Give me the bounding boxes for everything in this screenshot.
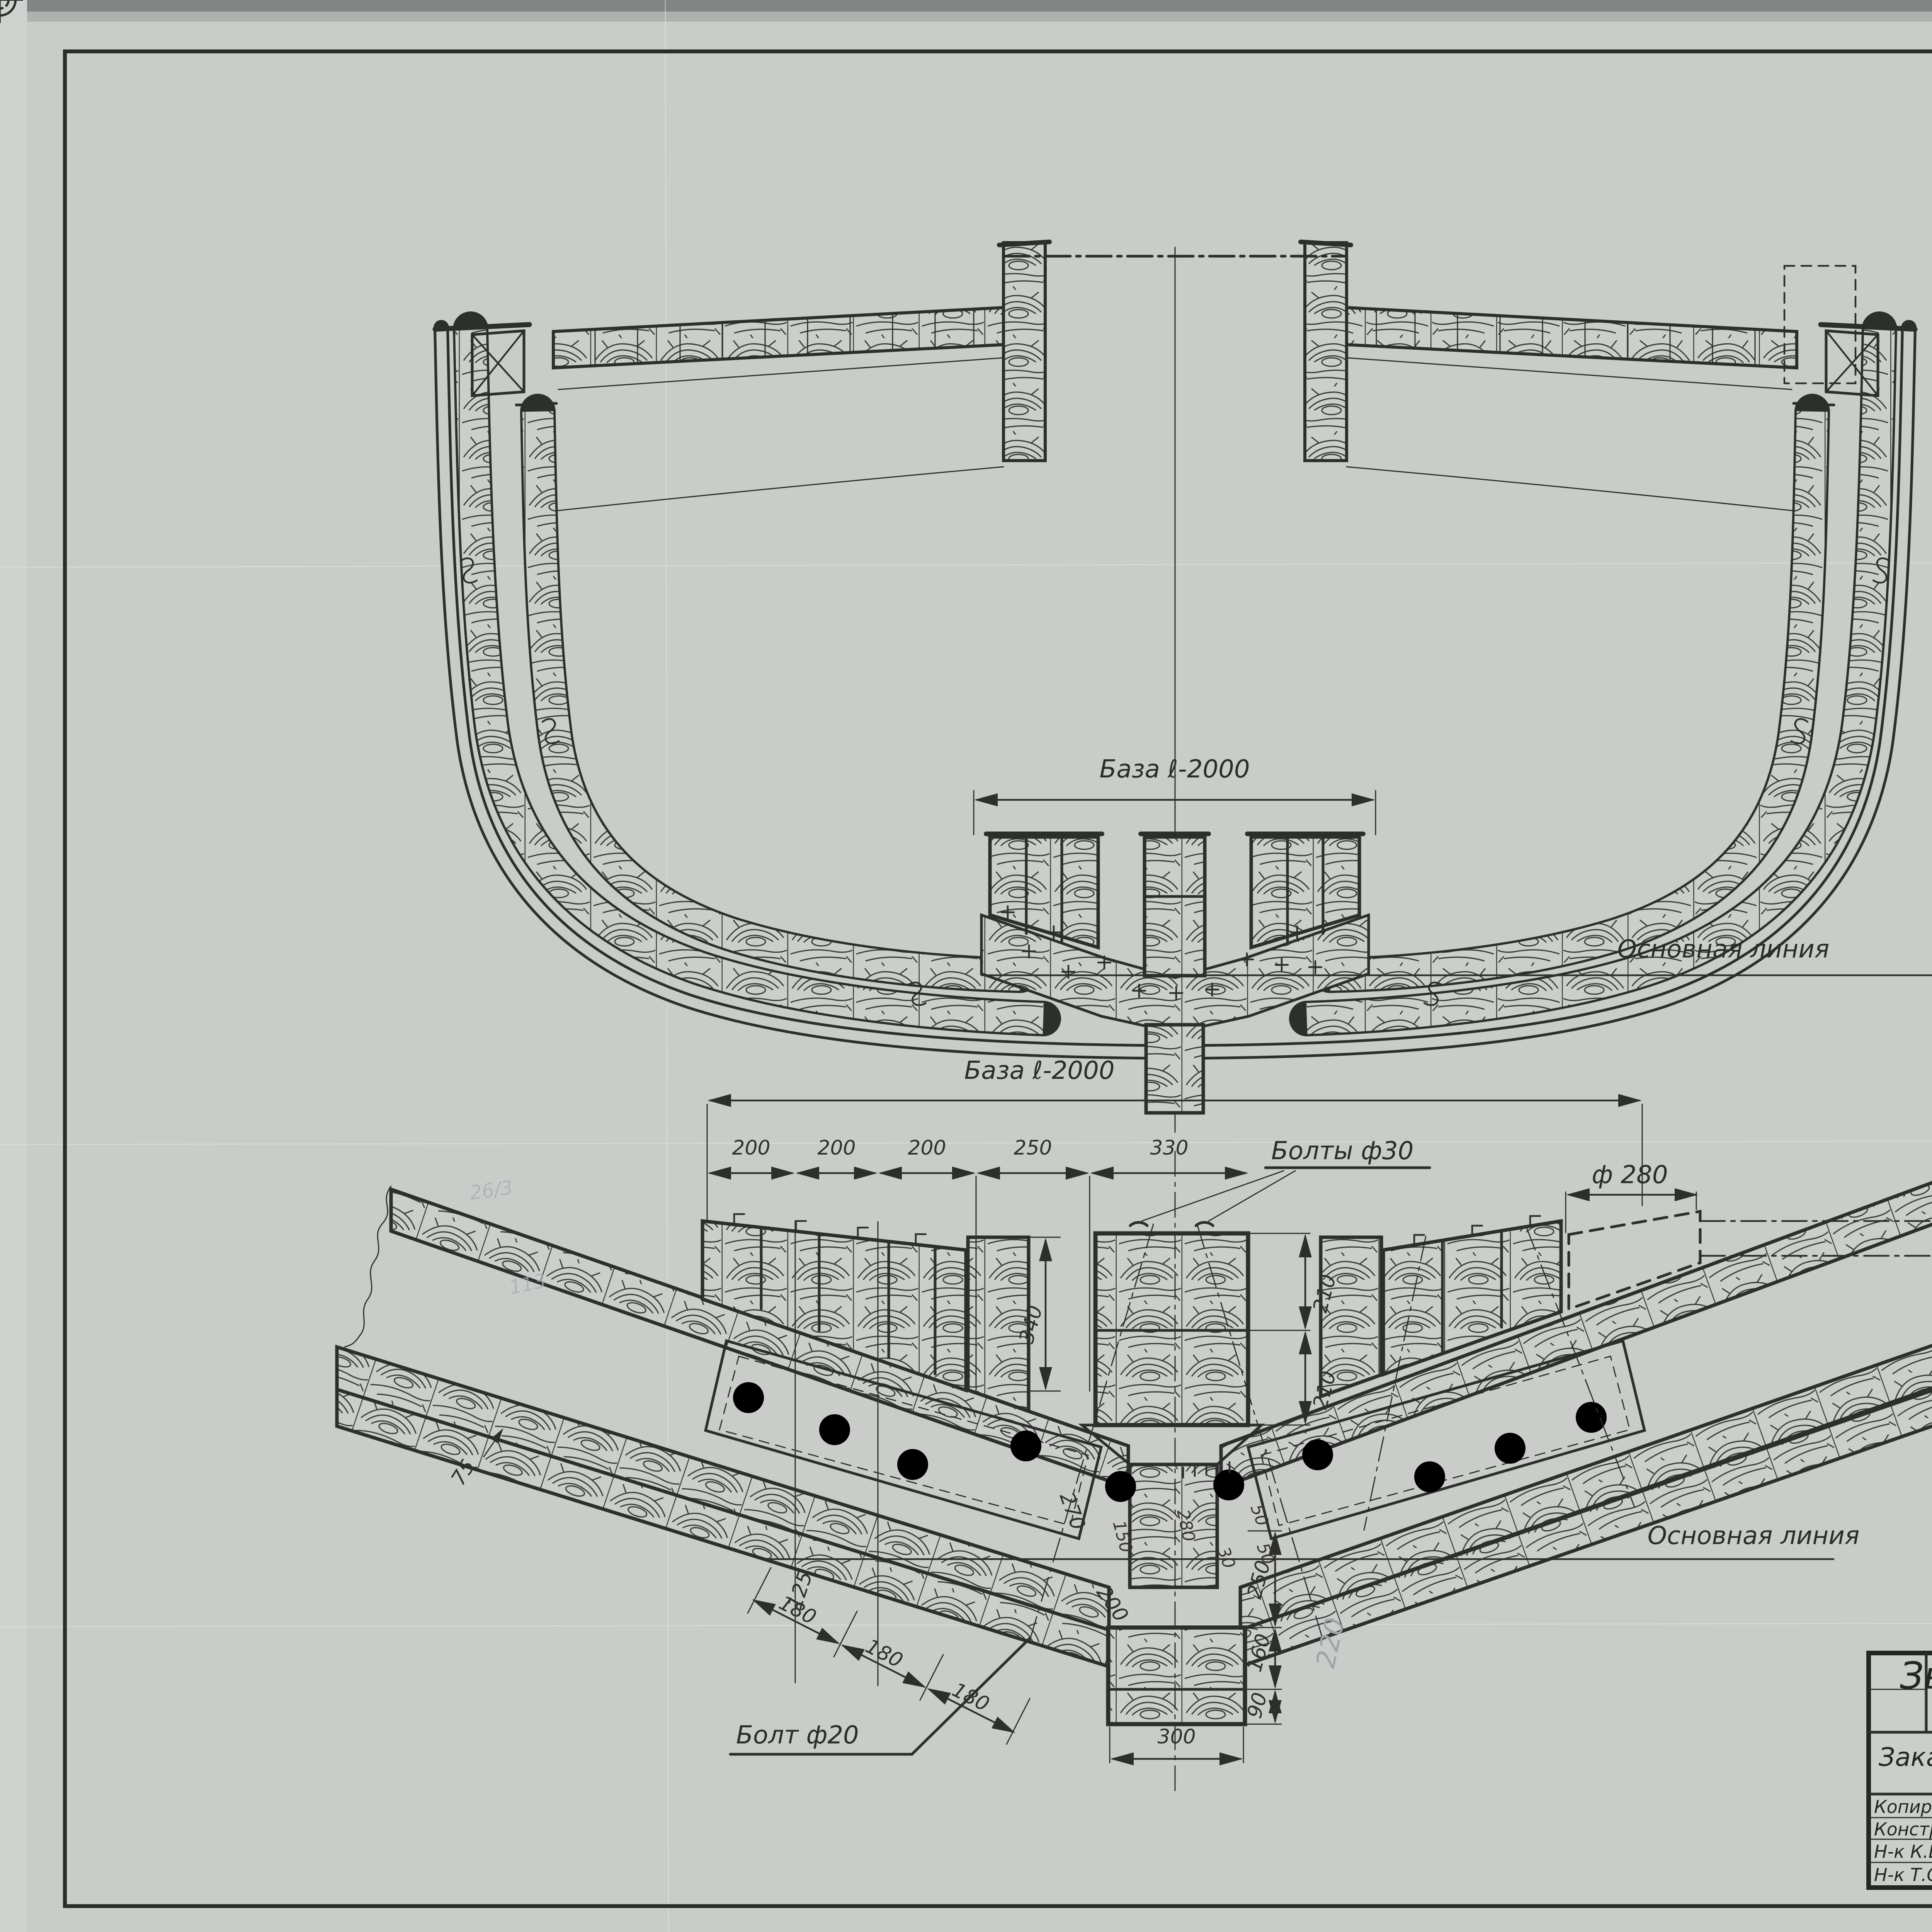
row-head-kb: Н-к К.Б. bbox=[1874, 1841, 1932, 1862]
upper-base-label: База ℓ-2000 bbox=[1099, 755, 1250, 784]
row-head-to: Н-к Т.О. bbox=[1874, 1864, 1932, 1885]
order-label: Заказ 3 bbox=[1879, 1742, 1932, 1772]
dia280-label: ф 280 bbox=[1592, 1161, 1668, 1189]
dim-200-3: 200 bbox=[908, 1136, 946, 1160]
row-copied: Копировала bbox=[1874, 1796, 1932, 1817]
keel-timber bbox=[1108, 1628, 1245, 1724]
lower-base-label: База ℓ-2000 bbox=[964, 1056, 1114, 1085]
dim-200-1: 200 bbox=[732, 1136, 770, 1160]
row-designer: Конструкт. bbox=[1874, 1819, 1932, 1840]
dim-300: 300 bbox=[1157, 1725, 1196, 1748]
blueprint-sheet: База ℓ-2000 Основная линия bbox=[0, 0, 1932, 1932]
bolt20-label: Болт ф20 bbox=[736, 1721, 859, 1750]
bolts30-label: Болты ф30 bbox=[1271, 1137, 1413, 1165]
dim-200-2: 200 bbox=[817, 1136, 855, 1160]
vessel-name-line1: Зверобойная bbox=[1900, 1654, 1932, 1697]
upper-baseline-label: Основная линия bbox=[1617, 935, 1830, 964]
dim-330: 330 bbox=[1150, 1136, 1188, 1160]
title-block: Зверобойная Шхуна Схема возможного разме… bbox=[1869, 1652, 1932, 1888]
dim-250: 250 bbox=[1014, 1136, 1052, 1160]
lower-baseline-label: Основная линия bbox=[1648, 1522, 1860, 1550]
